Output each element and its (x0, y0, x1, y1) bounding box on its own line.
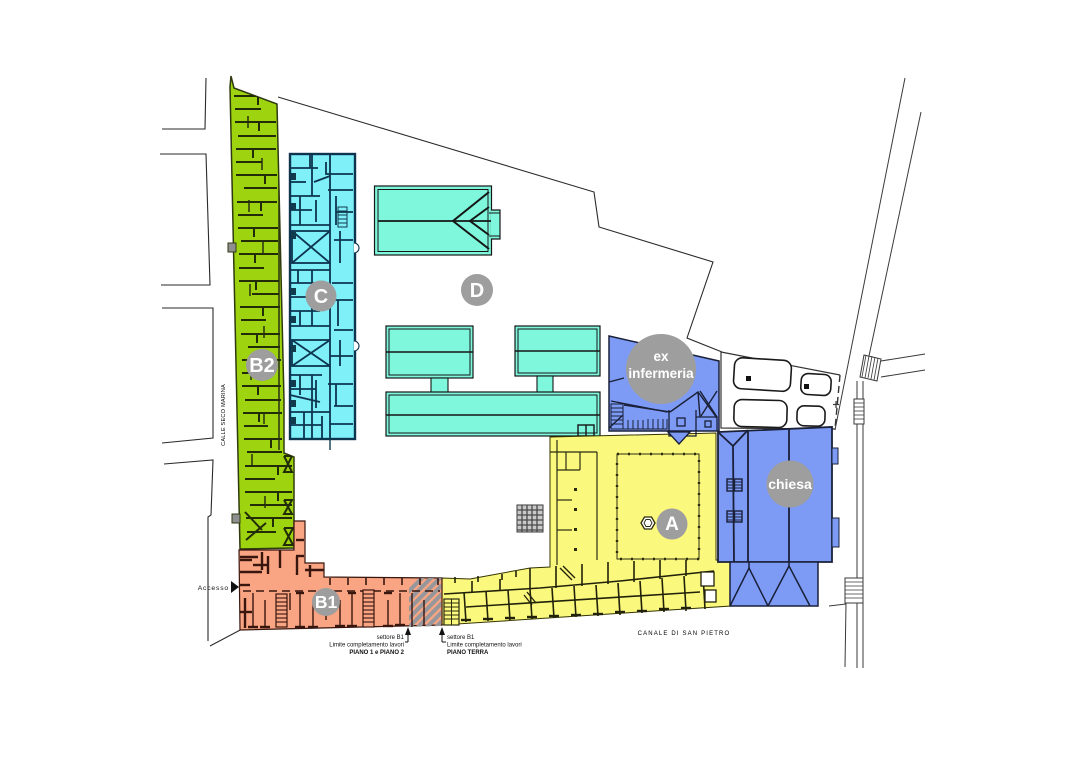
svg-text:Limite completamento lavori: Limite completamento lavori (329, 643, 404, 649)
svg-text:settore B1: settore B1 (377, 635, 405, 641)
svg-text:infermeria: infermeria (628, 366, 694, 381)
svg-text:B1: B1 (315, 592, 338, 612)
svg-text:Accesso: Accesso (198, 585, 229, 592)
svg-text:CALLE SECO MARINA: CALLE SECO MARINA (221, 384, 227, 446)
svg-text:PIANO TERRA: PIANO TERRA (447, 650, 489, 656)
svg-text:C: C (314, 286, 328, 308)
svg-text:settore B1: settore B1 (447, 635, 475, 641)
svg-text:ex: ex (653, 349, 669, 364)
svg-text:chiesa: chiesa (768, 476, 812, 492)
svg-text:Limite completamento lavori: Limite completamento lavori (447, 643, 522, 649)
svg-text:B2: B2 (249, 355, 275, 377)
svg-text:D: D (470, 280, 484, 302)
svg-text:A: A (665, 514, 679, 535)
svg-text:PIANO 1 e PIANO 2: PIANO 1 e PIANO 2 (349, 650, 404, 656)
svg-text:CANALE DI SAN PIETRO: CANALE DI SAN PIETRO (638, 631, 731, 637)
